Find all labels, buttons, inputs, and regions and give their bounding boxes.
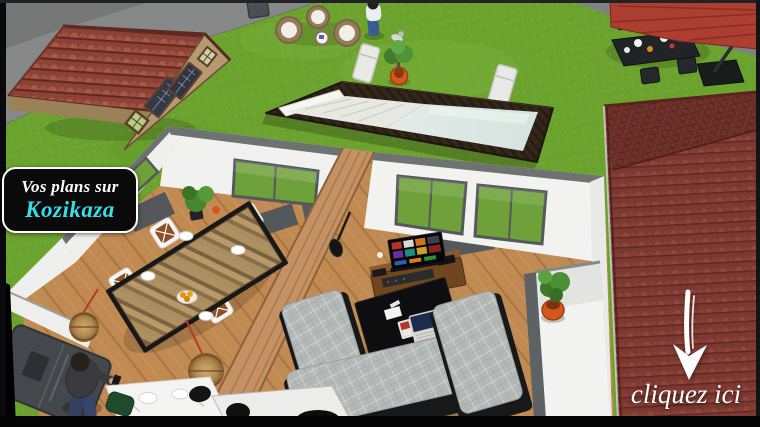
promo-badge: Vos plans sur Kozikaza — [2, 167, 138, 233]
cta-click-here[interactable]: cliquez ici — [612, 381, 760, 408]
badge-tagline: Vos plans sur — [21, 178, 118, 197]
vase — [377, 252, 383, 258]
kozikaza-promo-render: Vos plans sur Kozikaza cliquez ici — [0, 0, 760, 427]
plate — [199, 312, 213, 321]
fruit-bowl — [177, 291, 197, 304]
plate — [179, 232, 193, 241]
plate — [231, 246, 245, 255]
plate — [172, 389, 188, 399]
plate — [139, 393, 157, 404]
plate — [141, 272, 155, 281]
down-arrow-icon — [655, 288, 725, 384]
brand-name: Kozikaza — [25, 197, 115, 222]
pendant-lamp — [69, 312, 99, 342]
